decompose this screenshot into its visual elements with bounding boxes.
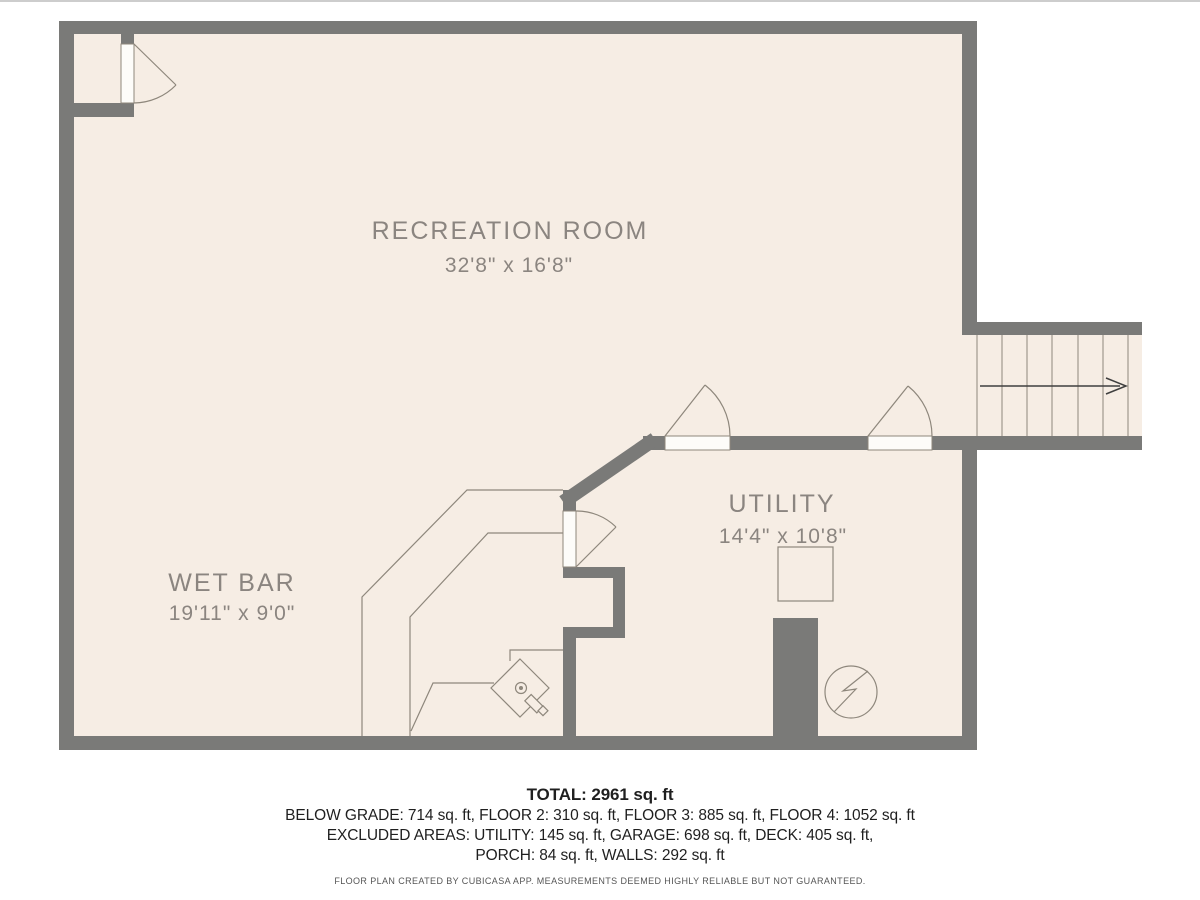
stair-corridor-top-wall bbox=[962, 322, 1142, 335]
utility-label: UTILITY bbox=[728, 490, 835, 518]
total-area: TOTAL: 2961 sq. ft bbox=[0, 784, 1200, 806]
recreation-room-label: RECREATION ROOM bbox=[372, 217, 649, 245]
disclaimer-text: FLOOR PLAN CREATED BY CUBICASA APP. MEAS… bbox=[0, 876, 1200, 886]
floor-plan-canvas: RECREATION ROOM 32'8" x 16'8" WET BAR 19… bbox=[0, 0, 1200, 770]
utility-dimensions: 14'4" x 10'8" bbox=[719, 525, 847, 548]
area-summary: TOTAL: 2961 sq. ft BELOW GRADE: 714 sq. … bbox=[0, 784, 1200, 866]
excluded-areas-line: EXCLUDED AREAS: UTILITY: 145 sq. ft, GAR… bbox=[0, 826, 1200, 846]
floor-plan: RECREATION ROOM 32'8" x 16'8" WET BAR 19… bbox=[0, 0, 1200, 770]
alcove-wall-stub bbox=[121, 21, 134, 44]
closet-bottom-wall bbox=[563, 627, 625, 638]
wet-bar-dimensions: 19'11" x 9'0" bbox=[169, 602, 296, 625]
utility-wall-stub bbox=[773, 618, 818, 736]
wet-bar-label: WET BAR bbox=[168, 569, 295, 597]
floor-areas-line: BELOW GRADE: 714 sq. ft, FLOOR 2: 310 sq… bbox=[0, 806, 1200, 826]
recreation-room-dimensions: 32'8" x 16'8" bbox=[445, 254, 573, 277]
excluded-areas-line-2: PORCH: 84 sq. ft, WALLS: 292 sq. ft bbox=[0, 846, 1200, 866]
alcove-bottom-wall bbox=[59, 103, 134, 117]
